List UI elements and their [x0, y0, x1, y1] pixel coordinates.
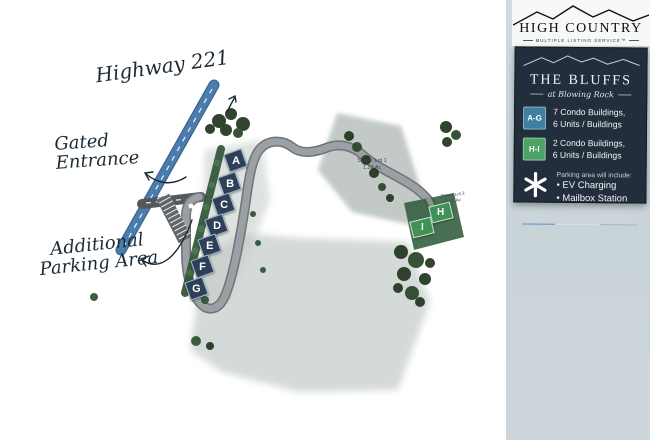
parking-note-heading: Parking area will include: — [557, 172, 632, 180]
legend-rule-right — [618, 94, 631, 95]
parking-note-bullet-ev: • EV Charging — [556, 180, 631, 193]
logo-subtitle-row: MULTIPLE LISTING SERVICE™ — [523, 38, 640, 43]
legend-subtitle: at Blowing Rock — [548, 90, 614, 100]
legend-subtitle-row: at Blowing Rock — [523, 89, 638, 99]
legend-title: THE BLUFFS — [523, 73, 638, 90]
badge-a-g: A-G — [523, 106, 546, 129]
logo-subtitle: MULTIPLE LISTING SERVICE™ — [536, 38, 627, 43]
logo-rule-left — [523, 40, 533, 41]
legend-item-ag-label: 7 Condo Buildings, 6 Units / Buildings — [553, 107, 625, 130]
logo-title: HIGH COUNTRY — [519, 22, 642, 36]
legend-rule-left — [531, 94, 544, 95]
legend-panel: THE BLUFFS at Blowing Rock A-G 7 Condo B… — [513, 46, 647, 203]
legend-footer-screening-buffer: VEGETATIVE SCREENING BUFFER — [555, 214, 600, 224]
gate-marker — [189, 204, 194, 209]
logo-rule-right — [629, 40, 639, 41]
badge-h-i: H-I — [523, 137, 546, 160]
mls-logo: HIGH COUNTRY MULTIPLE LISTING SERVICE™ — [512, 0, 650, 46]
legend-footer-caton-gap: CATON GAP — [522, 218, 555, 224]
legend-item-ag: A-G 7 Condo Buildings, 6 Units / Buildin… — [523, 106, 638, 130]
parking-note-bullet-mailbox: • Mailbox Station — [556, 193, 631, 206]
legend-footer-highway: HIGHWAY 221 — [600, 219, 637, 225]
legend-item-hi: H-I 2 Condo Buildings, 6 Units / Buildin… — [523, 137, 638, 161]
legend-footer: CATON GAP VEGETATIVE SCREENING BUFFER HI… — [522, 214, 637, 225]
parking-note: Parking area will include: • EV Charging… — [522, 171, 637, 206]
legend-mountain-icon — [524, 54, 640, 68]
lot1-label: Slover Lot 1 1.23 Ac — [344, 158, 400, 172]
site-plan-flyer: Highway 221 Gated Entrance Additional Pa… — [0, 0, 650, 440]
legend-item-hi-label: 2 Condo Buildings, 6 Units / Buildings — [553, 138, 625, 161]
asterisk-icon — [522, 171, 548, 197]
